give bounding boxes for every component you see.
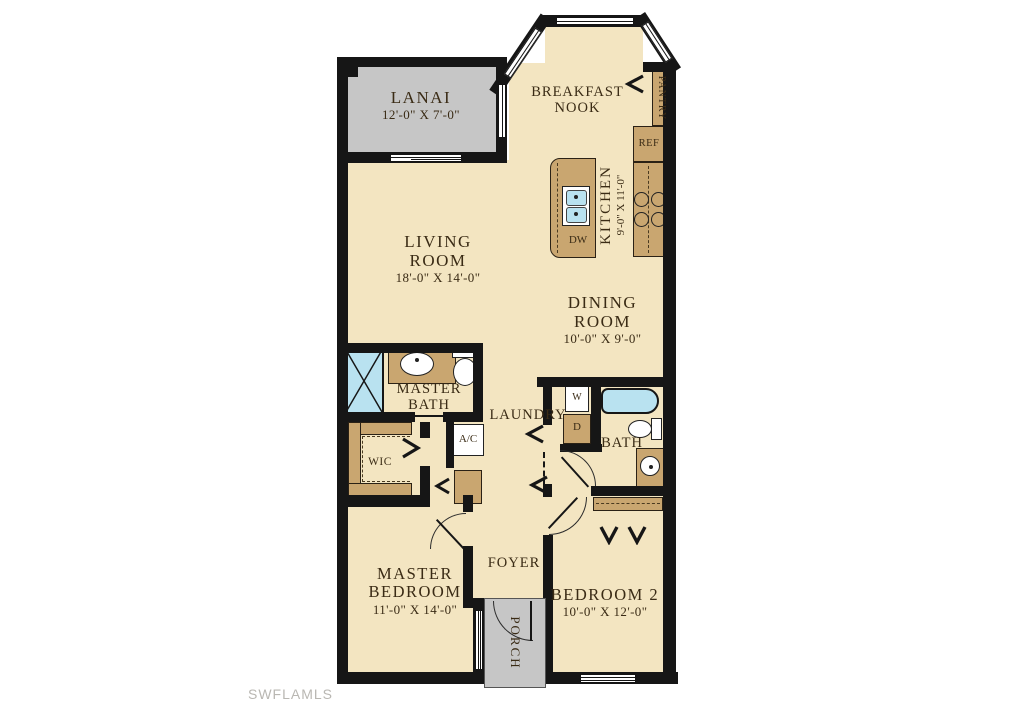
wall bbox=[337, 343, 483, 353]
stove-burner-icon bbox=[634, 192, 649, 207]
bath-sink bbox=[640, 456, 660, 476]
ref-label: REF bbox=[633, 138, 665, 150]
wall bbox=[337, 57, 348, 163]
wall bbox=[337, 57, 505, 67]
wall bbox=[337, 495, 430, 507]
room-dims: 18'-0" X 14'-0" bbox=[388, 271, 488, 286]
breakfast-nook-label: BREAKFAST NOOK bbox=[520, 84, 635, 116]
shower bbox=[344, 348, 384, 414]
master-bath-pocket-door bbox=[413, 415, 445, 417]
wic-label: WIC bbox=[358, 456, 402, 469]
lanai-label: LANAI 12'-0" X 7'-0" bbox=[351, 88, 491, 123]
room-name: LANAI bbox=[351, 88, 491, 107]
closet-bifold-icon bbox=[627, 524, 647, 545]
living-room-label: LIVING ROOM 18'-0" X 14'-0" bbox=[388, 232, 488, 286]
kitchen-label: KITCHEN 9'-0" X 11'-0" bbox=[598, 149, 636, 261]
master-bath-sink bbox=[400, 352, 434, 376]
porch-label: PORCH bbox=[506, 610, 522, 676]
wall bbox=[537, 377, 676, 387]
room-dims: 12'-0" X 7'-0" bbox=[351, 108, 491, 123]
wall bbox=[443, 412, 483, 422]
hall-bifold-icon bbox=[433, 477, 452, 495]
watermark: SWFLAMLS bbox=[248, 686, 333, 702]
bathtub bbox=[601, 388, 659, 414]
lanai-slider-door bbox=[390, 154, 462, 162]
dryer-label: D bbox=[563, 421, 591, 433]
dw-label: DW bbox=[563, 234, 593, 246]
room-dims: 11'-0" X 14'-0" bbox=[345, 603, 485, 618]
room-dims: 9'-0" X 11'-0" bbox=[615, 149, 627, 261]
master-bedroom-label: MASTER BEDROOM 11'-0" X 14'-0" bbox=[345, 565, 485, 617]
porch-sidelight-window bbox=[475, 610, 483, 670]
room-name: KITCHEN bbox=[598, 149, 615, 261]
room-dims: 10'-0" X 12'-0" bbox=[540, 605, 670, 620]
room-name: BEDROOM 2 bbox=[540, 586, 670, 604]
room-dims: 10'-0" X 9'-0" bbox=[540, 332, 665, 347]
kitchen-sink bbox=[562, 186, 590, 226]
bath-toilet-tank bbox=[651, 418, 662, 440]
wic-bifold-icon bbox=[400, 437, 422, 459]
front-door-leaf bbox=[530, 601, 532, 641]
foyer-label: FOYER bbox=[485, 555, 543, 571]
pantry-label: PANTRY bbox=[653, 65, 667, 131]
wall bbox=[337, 412, 415, 422]
nook-side-window bbox=[498, 84, 506, 138]
room-name: LIVING ROOM bbox=[388, 232, 488, 270]
bedroom2-label: BEDROOM 2 10'-0" X 12'-0" bbox=[540, 586, 670, 620]
wall bbox=[463, 495, 473, 512]
wall bbox=[420, 422, 430, 438]
bedroom2-window bbox=[580, 674, 636, 683]
laundry-bifold-icon bbox=[528, 475, 550, 495]
counter-dash bbox=[648, 166, 649, 253]
bay-window bbox=[556, 17, 634, 25]
shower-x-icon bbox=[346, 350, 382, 412]
dining-room-label: DINING ROOM 10'-0" X 9'-0" bbox=[540, 293, 665, 347]
laundry-bifold-icon bbox=[524, 424, 546, 444]
washer-label: W bbox=[565, 392, 589, 403]
stove-burner-icon bbox=[634, 212, 649, 227]
floor-plan: LANAI 12'-0" X 7'-0" BREAKFAST NOOK PANT… bbox=[0, 0, 1024, 720]
bedroom2-closet-shelf bbox=[593, 497, 663, 511]
bath-label: BATH bbox=[596, 435, 648, 451]
closet-rod-dash bbox=[596, 503, 660, 504]
master-bath-label: MASTER BATH bbox=[384, 381, 474, 413]
laundry-label: LAUNDRY bbox=[482, 407, 574, 423]
bay-window-right bbox=[642, 21, 673, 62]
island-overhang-dash bbox=[557, 163, 558, 253]
wall bbox=[591, 486, 676, 496]
wall bbox=[348, 67, 358, 77]
bay-floor bbox=[545, 27, 643, 67]
room-name: DINING ROOM bbox=[540, 293, 665, 331]
ac-label: A/C bbox=[452, 433, 484, 445]
room-name: MASTER BEDROOM bbox=[345, 565, 485, 602]
closet-bifold-icon bbox=[599, 524, 619, 545]
